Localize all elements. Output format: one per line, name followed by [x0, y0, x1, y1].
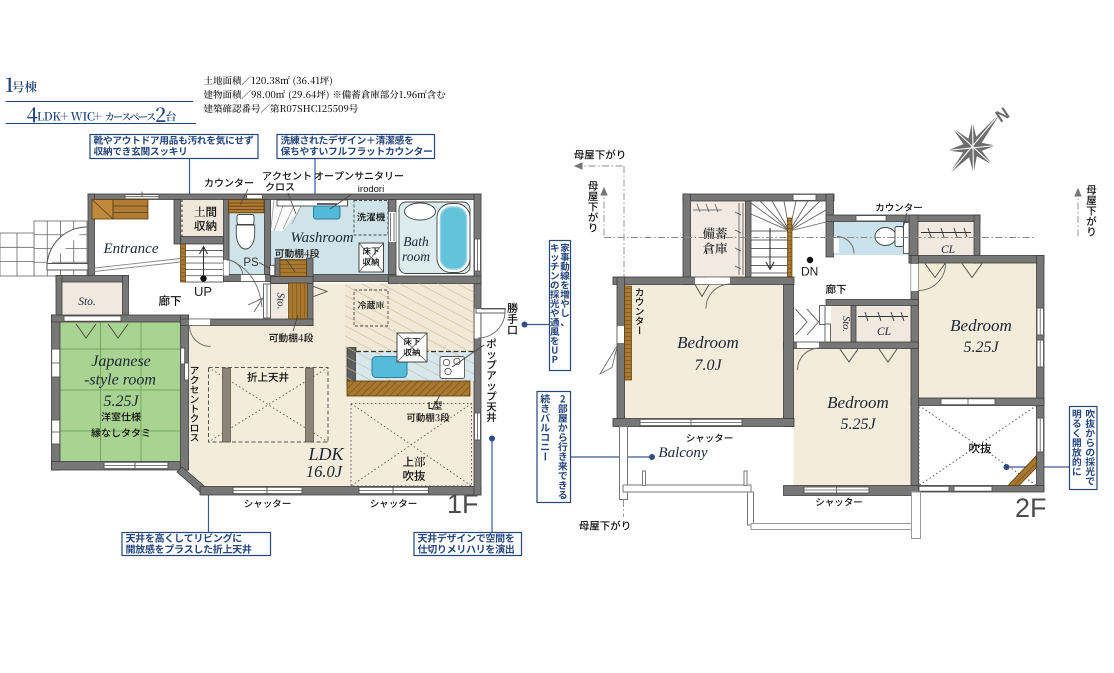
svg-text:Bath: Bath	[403, 234, 429, 249]
svg-text:Balcony: Balcony	[658, 445, 707, 461]
svg-text:LDK: LDK	[307, 444, 344, 464]
svg-text:Washroom: Washroom	[290, 230, 353, 246]
svg-text:16.0J: 16.0J	[306, 462, 343, 481]
svg-text:7.0J: 7.0J	[694, 357, 722, 374]
svg-text:Sto.: Sto.	[840, 316, 851, 332]
svg-text:Sto.: Sto.	[78, 296, 96, 308]
svg-text:DN: DN	[801, 265, 818, 279]
svg-text:UP: UP	[194, 284, 212, 299]
svg-text:room: room	[402, 249, 430, 264]
svg-text:Bedroom: Bedroom	[827, 393, 889, 412]
svg-text:2F: 2F	[1015, 493, 1047, 523]
svg-text:-style room: -style room	[84, 372, 156, 389]
svg-text:Entrance: Entrance	[103, 241, 159, 257]
svg-text:CL: CL	[941, 244, 955, 256]
svg-text:irodori: irodori	[358, 184, 384, 195]
svg-text:5.25J: 5.25J	[103, 393, 139, 410]
svg-text:Sto.: Sto.	[275, 293, 287, 310]
svg-text:Japanese: Japanese	[91, 353, 151, 370]
svg-text:Bedroom: Bedroom	[950, 316, 1012, 335]
svg-text:5.25J: 5.25J	[840, 416, 876, 433]
svg-text:5.25J: 5.25J	[963, 339, 999, 356]
svg-text:1F: 1F	[447, 489, 479, 519]
svg-text:Bedroom: Bedroom	[677, 333, 739, 352]
svg-text:CL: CL	[877, 326, 891, 338]
svg-text:PS: PS	[243, 257, 259, 269]
